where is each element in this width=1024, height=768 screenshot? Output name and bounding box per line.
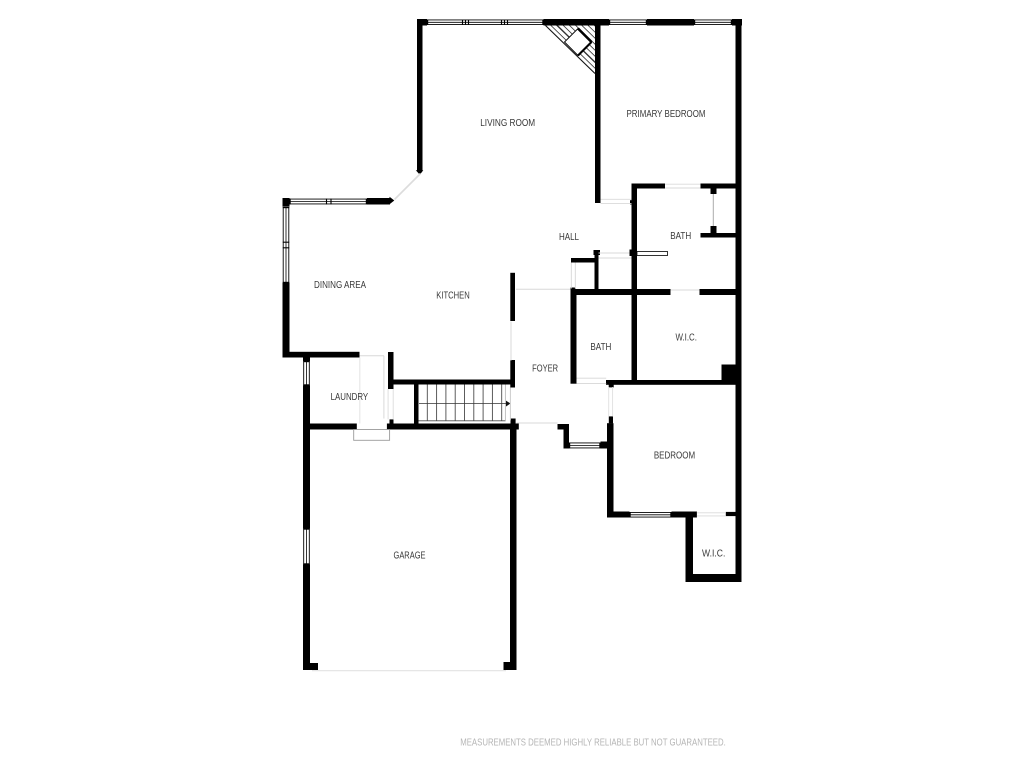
- svg-text:PRIMARY BEDROOM: PRIMARY BEDROOM: [627, 109, 706, 120]
- svg-text:BATH: BATH: [590, 342, 611, 353]
- svg-text:MEASUREMENTS DEEMED HIGHLY REL: MEASUREMENTS DEEMED HIGHLY RELIABLE BUT …: [460, 737, 726, 748]
- svg-text:KITCHEN: KITCHEN: [436, 291, 470, 302]
- svg-text:LAUNDRY: LAUNDRY: [331, 392, 369, 403]
- svg-text:HALL: HALL: [559, 232, 579, 243]
- svg-text:GARAGE: GARAGE: [394, 551, 426, 562]
- svg-text:W.I.C.: W.I.C.: [702, 549, 725, 560]
- svg-text:LIVING ROOM: LIVING ROOM: [480, 118, 535, 129]
- svg-text:W.I.C.: W.I.C.: [675, 332, 697, 343]
- svg-text:BATH: BATH: [670, 231, 691, 242]
- svg-text:DINING AREA: DINING AREA: [314, 280, 366, 291]
- svg-text:FOYER: FOYER: [532, 363, 558, 374]
- svg-text:BEDROOM: BEDROOM: [654, 450, 695, 461]
